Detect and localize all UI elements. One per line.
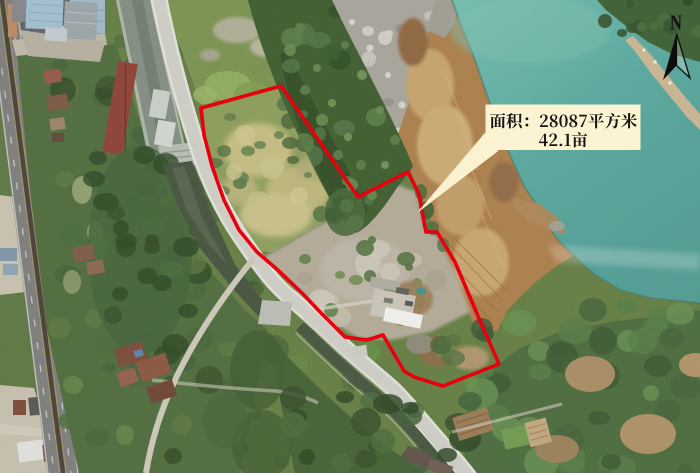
svg-text:N: N xyxy=(670,11,682,35)
